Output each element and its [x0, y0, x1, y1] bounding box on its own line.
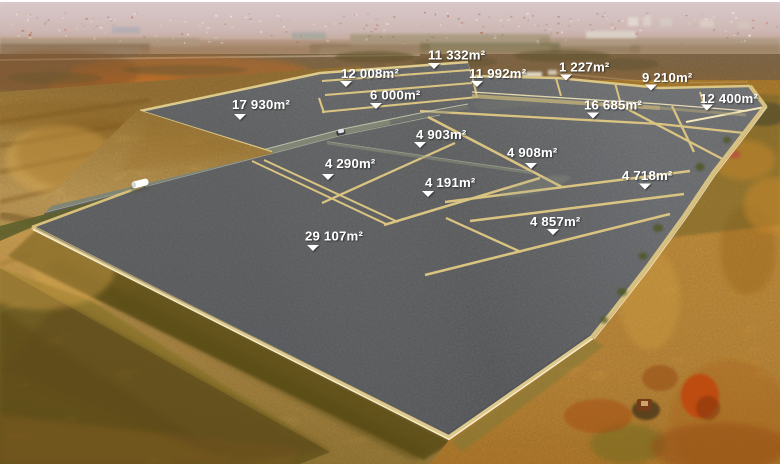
svg-text:17 930m²: 17 930m² [232, 97, 290, 112]
svg-text:11 332m²: 11 332m² [428, 48, 486, 63]
svg-text:4 718m²: 4 718m² [622, 168, 673, 183]
svg-text:4 290m²: 4 290m² [325, 156, 376, 171]
svg-text:12 400m²: 12 400m² [700, 91, 758, 106]
svg-text:4 908m²: 4 908m² [507, 145, 558, 160]
svg-text:16 685m²: 16 685m² [584, 98, 642, 113]
svg-text:29 107m²: 29 107m² [305, 229, 363, 244]
svg-text:9 210m²: 9 210m² [642, 70, 693, 85]
svg-text:1 227m²: 1 227m² [559, 60, 610, 75]
svg-text:4 191m²: 4 191m² [425, 175, 476, 190]
svg-text:11 992m²: 11 992m² [469, 66, 527, 81]
svg-text:12 008m²: 12 008m² [341, 66, 399, 81]
svg-text:6 000m²: 6 000m² [370, 88, 421, 103]
svg-text:4 903m²: 4 903m² [416, 127, 467, 142]
svg-text:4 857m²: 4 857m² [530, 214, 581, 229]
